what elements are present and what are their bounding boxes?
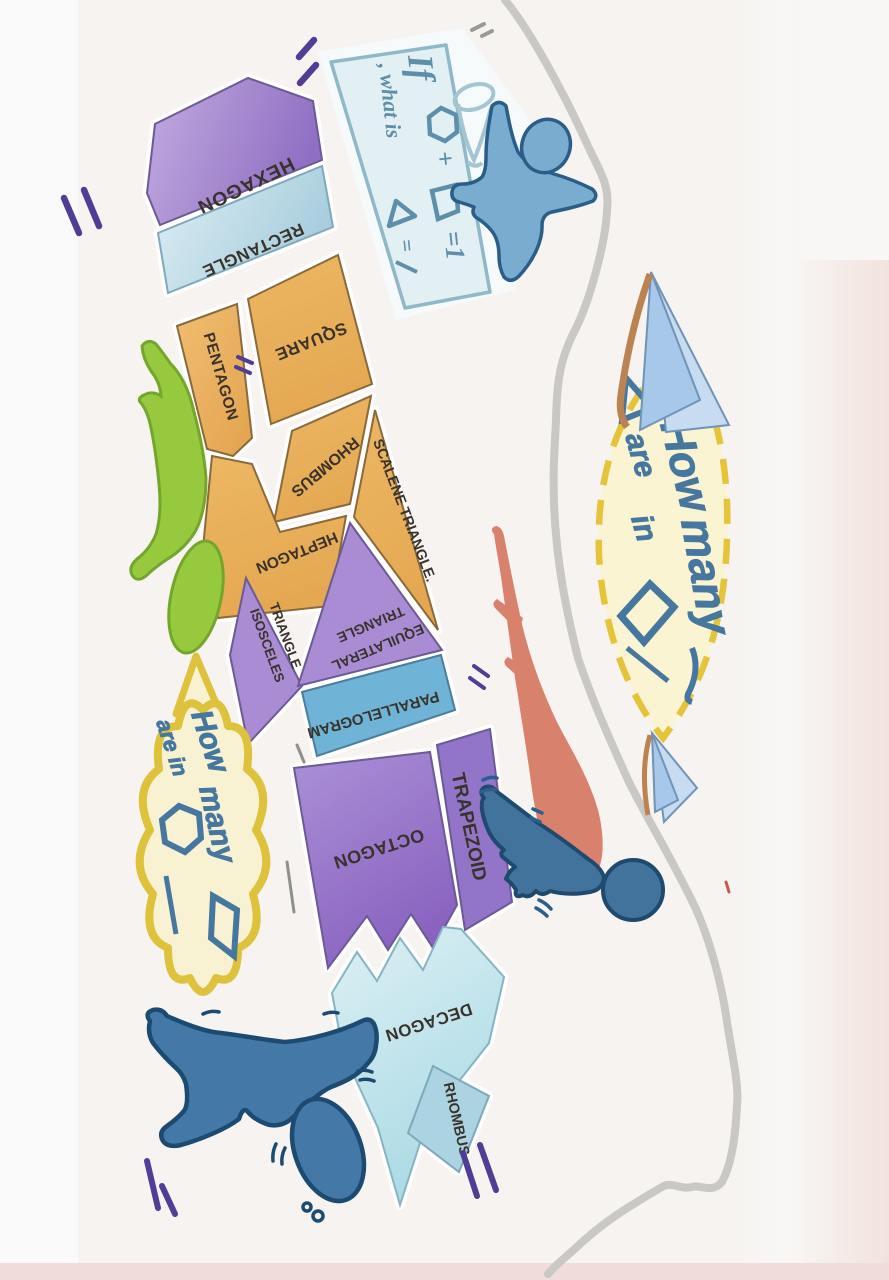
svg-text:=: =: [394, 238, 420, 253]
svg-text:+: +: [430, 150, 460, 168]
svg-text:=1: =1: [438, 229, 471, 261]
